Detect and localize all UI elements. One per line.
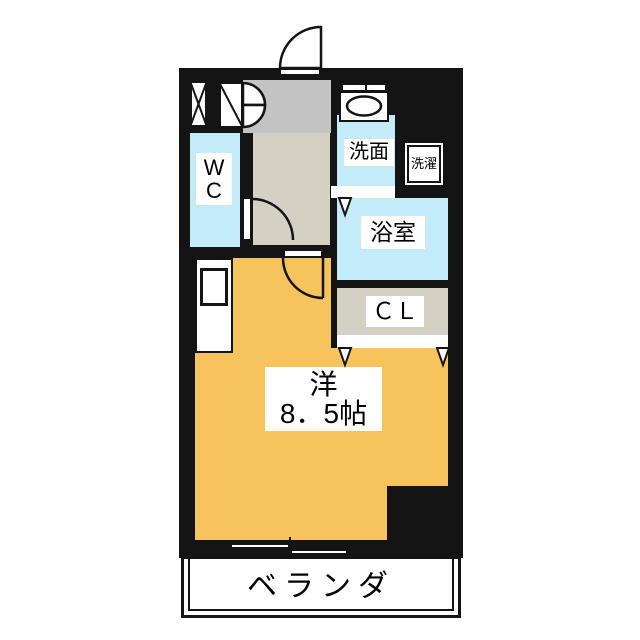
washroom-label-text: 洗面 <box>349 142 389 163</box>
laundry-box-inner: 洗濯 <box>407 145 441 183</box>
room-door-leaf <box>283 249 323 258</box>
pipe-space-box <box>190 81 207 127</box>
shoe-cabinet-box <box>219 82 243 128</box>
laundry-label-text: 洗濯 <box>411 157 437 171</box>
wc-label-line2: C <box>206 179 222 202</box>
main-room-label: 洋 8．5帖 <box>265 367 382 431</box>
hallway-floor <box>253 133 330 245</box>
veranda-label-text: ベランダ <box>247 571 395 603</box>
bathroom-label: 浴室 <box>361 216 425 249</box>
sliding-window-rail-2 <box>290 549 348 555</box>
sliding-window-rail-1 <box>230 543 290 549</box>
main-room-name: 洋 <box>309 370 337 399</box>
closet-door-strip <box>337 335 448 348</box>
closet-label: ＣＬ <box>366 296 424 327</box>
main-room-size: 8．5帖 <box>280 399 367 428</box>
washroom-label: 洗面 <box>344 139 394 166</box>
washroom-threshold <box>331 186 395 198</box>
closet-label-text: ＣＬ <box>372 299 418 323</box>
wc-door-leaf <box>242 197 252 241</box>
floorplan-canvas: W C 洗面 洗濯 浴室 ＣＬ 洋 8．5帖 <box>0 0 640 640</box>
kitchen-sink <box>200 268 228 306</box>
entrance-door-leaf <box>279 68 321 76</box>
wc-label: W C <box>196 153 232 205</box>
veranda-label: ベランダ <box>211 568 431 606</box>
entrance-genkan-floor <box>243 80 331 133</box>
bathroom-label-text: 浴室 <box>370 220 416 244</box>
main-room-floor-bottom <box>331 486 387 540</box>
vanity-counter <box>339 91 389 122</box>
entrance-door-swing-icon <box>280 27 321 68</box>
wc-label-line1: W <box>204 156 225 179</box>
